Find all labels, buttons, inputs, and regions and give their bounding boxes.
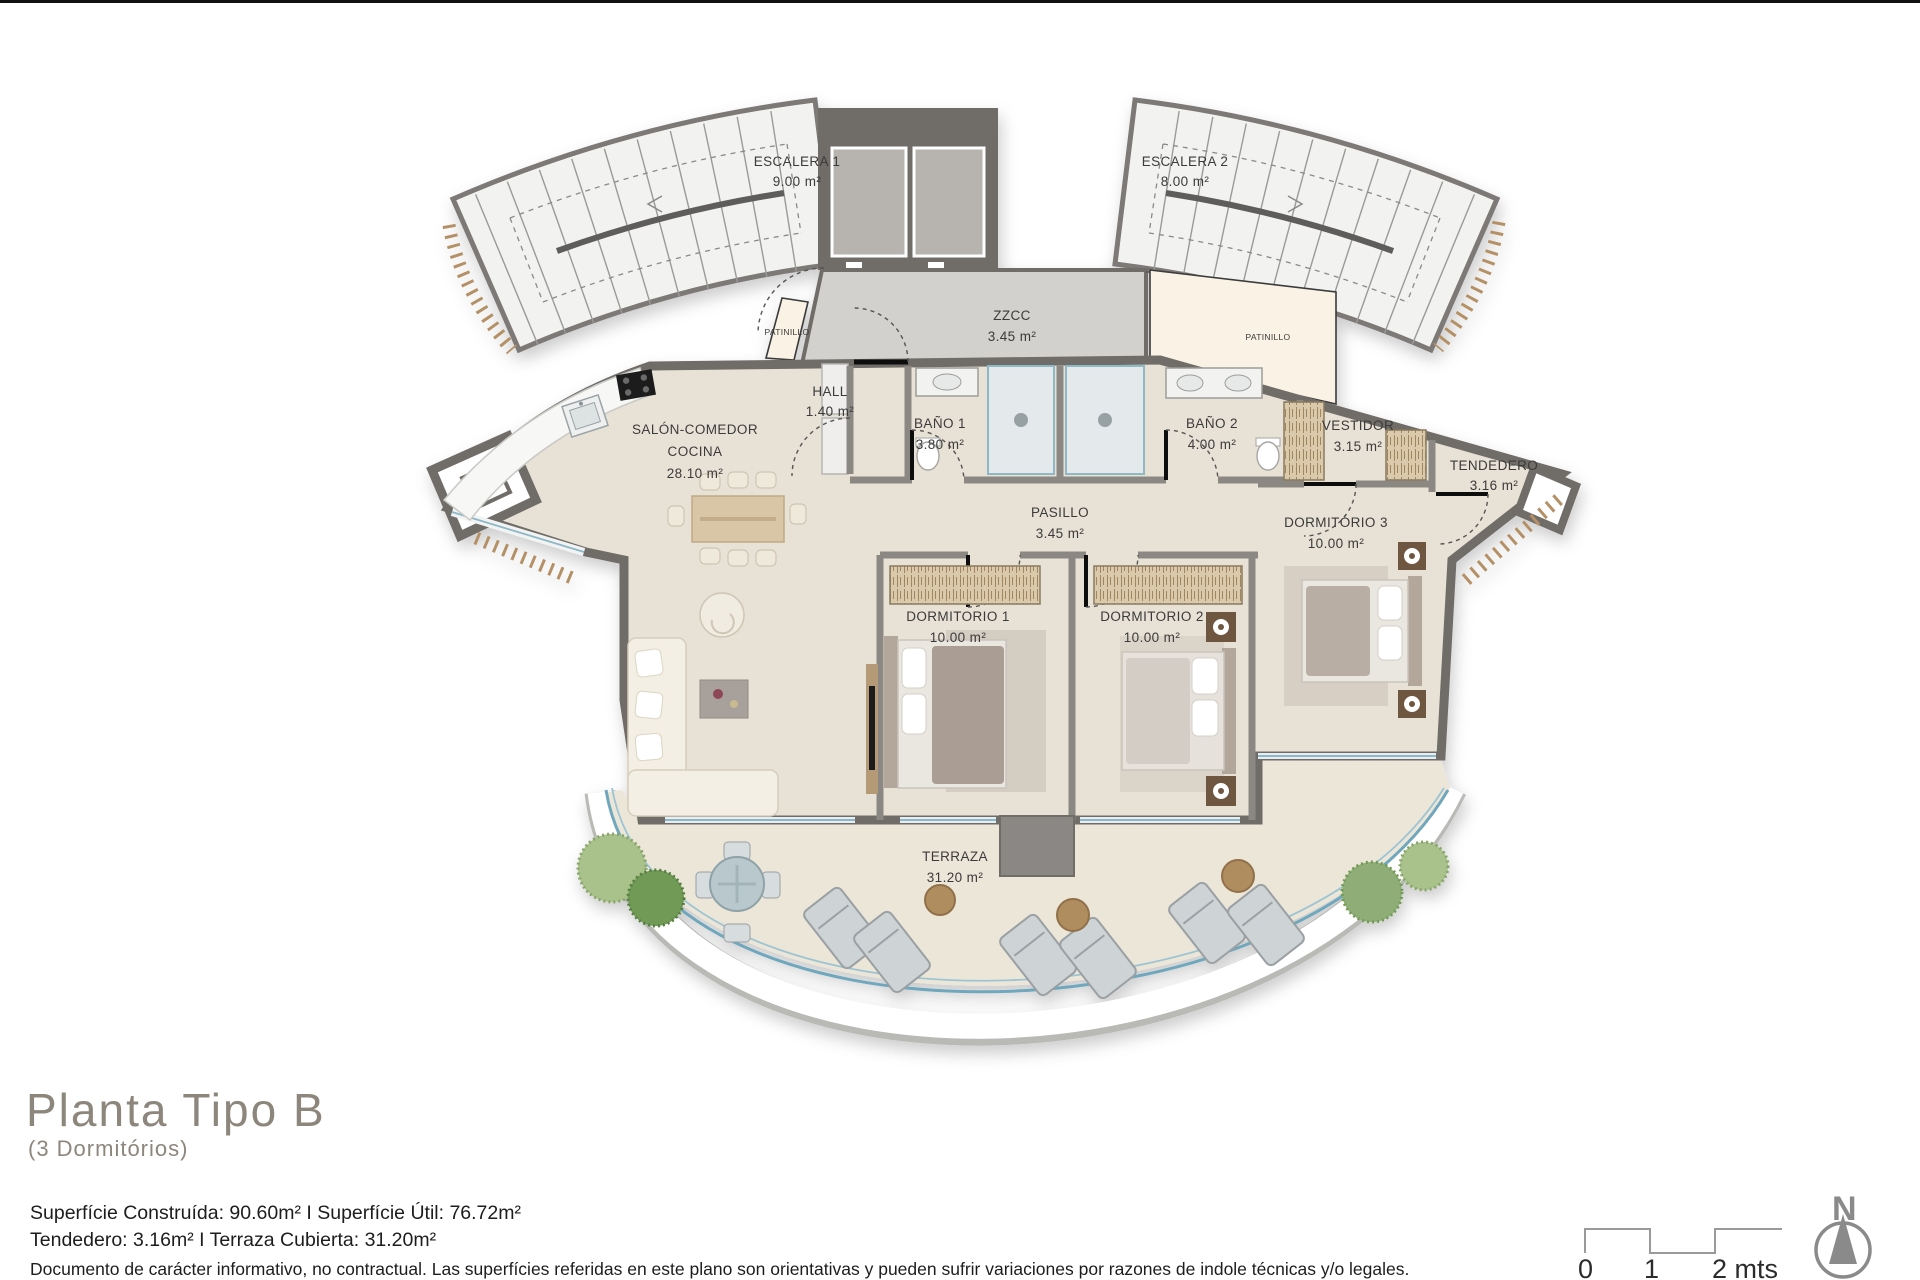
label-escalera1-area: 9.00 m²	[773, 174, 822, 189]
scale-tick-1: 1	[1644, 1254, 1659, 1280]
tall-cabinet-2	[822, 418, 848, 474]
elevator-block	[818, 108, 998, 272]
label-escalera2-area: 8.00 m²	[1161, 174, 1210, 189]
label-bano1: BAÑO 1	[914, 416, 966, 431]
label-bano1-area: 3.80 m²	[916, 437, 965, 452]
north-compass: N	[1816, 1190, 1870, 1277]
right-end-cap	[1518, 468, 1576, 530]
page-subtitle: (3 Dormitórios)	[28, 1136, 188, 1161]
side-table	[925, 885, 955, 915]
tv	[869, 686, 875, 770]
label-dorm1: DORMITORIO 1	[906, 609, 1010, 624]
elevator-shaft-2	[914, 148, 984, 256]
label-zzcc: ZZCC	[993, 308, 1031, 323]
plant	[1342, 862, 1402, 922]
scale-bar-line	[1585, 1229, 1782, 1253]
bed3-headboard	[1408, 576, 1422, 686]
label-hall: HALL	[812, 384, 847, 399]
plant	[628, 870, 684, 926]
label-dorm2-area: 10.00 m²	[1124, 630, 1181, 645]
label-dorm3-area: 10.00 m²	[1308, 536, 1365, 551]
label-pasillo: PASILLO	[1031, 505, 1089, 520]
label-dorm2: DORMITORIO 2	[1100, 609, 1204, 624]
plant	[1400, 842, 1448, 890]
label-tendedero: TENDEDERO	[1450, 458, 1538, 473]
label-bano2: BAÑO 2	[1186, 416, 1238, 431]
wardrobe-dorm1	[890, 566, 1040, 604]
bed1-headboard	[884, 636, 898, 788]
side-table	[1057, 899, 1089, 931]
floor-plan-page: ESCALERA 1 9.00 m² ESCALERA 2 8.00 m² ZZ…	[0, 0, 1920, 1280]
page-title: Planta Tipo B	[26, 1084, 326, 1136]
top-border	[0, 0, 1920, 3]
elevator-shaft-1	[832, 148, 906, 256]
side-table	[1222, 860, 1254, 892]
label-escalera2: ESCALERA 2	[1142, 154, 1229, 169]
label-patinillo-right: PATINILLO	[1246, 332, 1291, 342]
scale-tick-0: 0	[1578, 1254, 1593, 1280]
building: ESCALERA 1 9.00 m² ESCALERA 2 8.00 m² ZZ…	[432, 100, 1576, 1030]
label-salon-line1: SALÓN-COMEDOR	[632, 422, 758, 437]
label-escalera1: ESCALERA 1	[754, 154, 841, 169]
bed3-blanket	[1306, 586, 1370, 676]
label-terraza: TERRAZA	[922, 849, 988, 864]
sofa-chaise	[628, 770, 778, 816]
footer: Planta Tipo B (3 Dormitórios) Superfície…	[26, 1084, 1870, 1280]
scale-tick-2: 2 mts	[1712, 1254, 1778, 1280]
label-zzcc-area: 3.45 m²	[988, 329, 1037, 344]
floor-plan-canvas: ESCALERA 1 9.00 m² ESCALERA 2 8.00 m² ZZ…	[0, 0, 1920, 1280]
label-pasillo-area: 3.45 m²	[1036, 526, 1085, 541]
label-vestidor-area: 3.15 m²	[1334, 439, 1383, 454]
coffee-table	[700, 680, 748, 718]
label-hall-area: 1.40 m²	[806, 404, 855, 419]
label-patinillo-left: PATINILLO	[765, 327, 810, 337]
label-terraza-area: 31.20 m²	[927, 870, 984, 885]
summary-line1: Superfície Construída: 90.60m² I Superfí…	[30, 1201, 521, 1224]
summary-line2: Tendedero: 3.16m² I Terraza Cubierta: 31…	[30, 1229, 437, 1251]
label-vestidor: VESTIDOR	[1322, 418, 1394, 433]
label-dorm3: DORMITÓRIO 3	[1284, 515, 1388, 530]
bed2-blanket	[1126, 658, 1190, 764]
terrace-pillar	[1000, 816, 1074, 876]
label-salon-area: 28.10 m²	[667, 466, 724, 481]
label-tendedero-area: 3.16 m²	[1470, 478, 1519, 493]
bed1-blanket	[932, 646, 1004, 784]
armchair	[700, 593, 744, 637]
label-salon-line2: COCINA	[668, 444, 723, 459]
dormitorio1-furniture	[884, 566, 1046, 792]
dormitorio3-furniture	[1284, 542, 1426, 718]
disclaimer-text: Documento de carácter informativo, no co…	[30, 1259, 1409, 1279]
wardrobe-dorm2	[1094, 566, 1242, 604]
scale-bar: 0 1 2 mts	[1578, 1229, 1782, 1280]
label-bano2-area: 4.00 m²	[1188, 437, 1237, 452]
label-dorm1-area: 10.00 m²	[930, 630, 987, 645]
